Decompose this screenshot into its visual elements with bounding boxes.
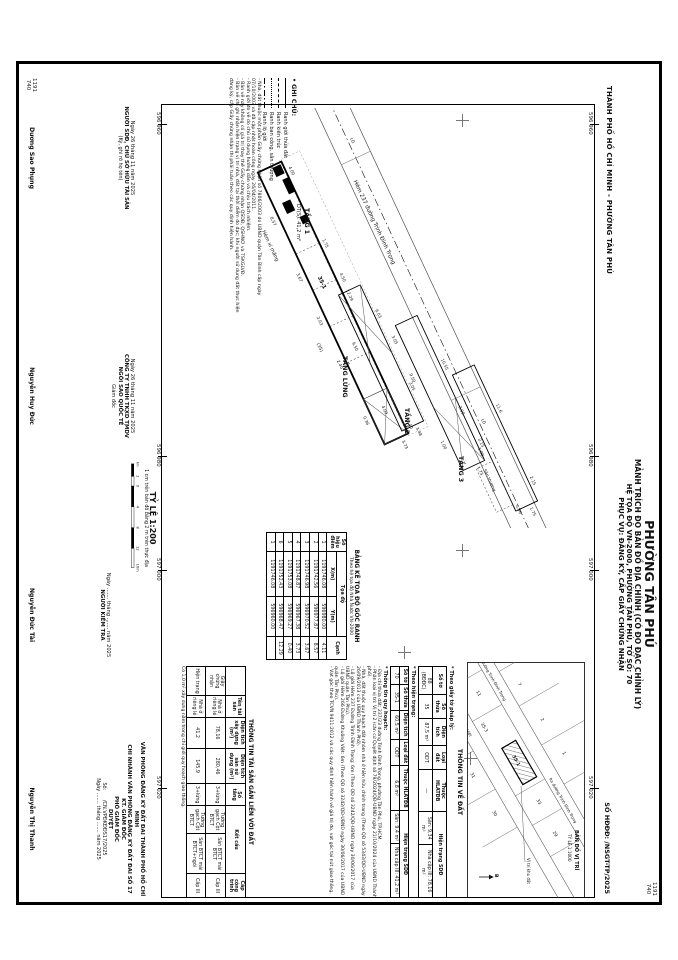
cell: — bbox=[418, 770, 432, 812]
signature-name-company: Nguyễn Huy Đức bbox=[28, 316, 35, 476]
cell-y: 596960.00 bbox=[267, 596, 276, 636]
line-sample-solid-icon bbox=[285, 78, 286, 108]
scale-title: TỶ LỆ 1:200 bbox=[148, 462, 157, 574]
scale-tick-label: 8 bbox=[135, 526, 139, 529]
signature-name-checker: Nguyễn Đức Tài bbox=[28, 550, 35, 680]
row-label: Giấy chứng nhận bbox=[206, 667, 226, 696]
dim-label: 0.36 bbox=[362, 415, 371, 426]
scale-tick-label: 0 bbox=[135, 485, 139, 488]
table-row: 5 1191753.08 596969.27 0.40 bbox=[284, 533, 293, 660]
inset-title: BẢN ĐỒ VỊ TRÍ bbox=[573, 830, 582, 871]
col-header: Kết cấu bbox=[226, 805, 246, 873]
cell-point: 1 bbox=[267, 533, 276, 552]
dim-label: 4.50 bbox=[339, 272, 348, 283]
cell: 70 bbox=[391, 667, 400, 685]
cell-x: 1191746.98 bbox=[301, 552, 310, 597]
inset-parcel-number: 30 bbox=[490, 810, 498, 818]
cell-point: 2 bbox=[310, 533, 319, 552]
parcel-number-alt: (35) bbox=[315, 342, 325, 353]
col-header: Y(m) bbox=[327, 596, 337, 636]
cell-point: 4 bbox=[292, 533, 301, 552]
street-area: Hẻm 237 đường Trịnh Đình Trọng LG LG bbox=[295, 108, 556, 528]
col-header: Số tờ bbox=[400, 667, 409, 685]
col-header: Cạnh bbox=[327, 637, 347, 660]
col-header: Cấp công trình bbox=[226, 874, 246, 898]
cell: Nhà ở riêng lẻ bbox=[186, 696, 206, 718]
floor-label-tang1: TẦNG 1 bbox=[303, 208, 313, 234]
legend-item: Ranh ban công, sân thượng bbox=[268, 78, 275, 316]
signature-role: NGƯỜI KIỂM TRA bbox=[99, 550, 105, 680]
cell: Nhà cấp III: 78,16 m² bbox=[418, 845, 432, 898]
floor-plan-tang2: 10.55 2.15 9.50 1.00 1.75 3.05 bbox=[387, 312, 496, 485]
signature-date: Ngày ....... tháng ....... năm 2025 bbox=[105, 550, 111, 680]
table-row: 70 35-1 60,5 m² ODT 6,8 m² Sân: 9,4 m² N… bbox=[391, 667, 400, 898]
cell-y: 596967.38 bbox=[292, 596, 301, 636]
scale-tick-label: 4 bbox=[135, 506, 139, 509]
corner-coordinate: 1191 740 bbox=[645, 882, 657, 896]
land-info-title: THÔNG TIN VỀ ĐẤT bbox=[456, 666, 463, 898]
floor-label-tang-lung: TẦNG LỬNG bbox=[341, 356, 351, 398]
asset-info-title: THÔNG TIN TÀI SẢN GẮN LIỀN VỚI ĐẤT bbox=[247, 666, 253, 898]
cell: 3+lửng bbox=[206, 784, 226, 805]
subtitle-1: MẢNH TRÍCH ĐO BẢN ĐỒ ĐỊA CHÍNH (CÓ ĐO ĐẠ… bbox=[633, 364, 642, 804]
coordinate-table-block: BẢNG KÊ TỌA ĐỘ GÓC RANH Theo hệ tọa độ N… bbox=[266, 532, 359, 660]
cell: 3+lửng bbox=[186, 784, 206, 805]
scale-tick-label: 16m bbox=[135, 564, 139, 573]
signature-name-owner: Dương Sao Phụng bbox=[28, 88, 35, 228]
planning-note: - Lộ giới Hẻm 266 Đường Khuông Việt: 6m … bbox=[333, 666, 344, 898]
inset-parcel-number: 1 bbox=[560, 751, 567, 757]
cell-x: 1191742.56 bbox=[310, 552, 319, 597]
legend-item-label: Ranh ban công, sân thượng bbox=[269, 112, 275, 181]
legend-item: Ranh giới thửa đất bbox=[282, 78, 289, 316]
cell-edge bbox=[267, 637, 276, 660]
contract-number: SỐ HĐĐĐ: /NSGT-TP/2025 bbox=[603, 802, 611, 894]
dim-label: 2.03 bbox=[316, 316, 325, 327]
dim-label: 3.48 bbox=[415, 426, 424, 437]
signature-office: VĂN PHÒNG ĐĂNG KÝ ĐẤT ĐAI THÀNH PHỐ HỒ C… bbox=[95, 736, 145, 902]
cell-x: 1191753.08 bbox=[284, 552, 293, 597]
inset-street3: Hẻm 266 đường Khuông Việt bbox=[467, 686, 474, 738]
legend-item-label: Ranh lộ giới bbox=[262, 112, 268, 141]
signature-checker: Ngày ....... tháng ....... năm 2025 NGƯỜ… bbox=[99, 550, 111, 680]
col-header: Diện tích sàn sử dụng (m²) bbox=[226, 748, 246, 784]
col-header: Hiện trạng SDĐ bbox=[432, 812, 446, 898]
cell: Sân: 9,34 m² bbox=[418, 812, 432, 845]
dim-label: 3.05 bbox=[391, 335, 400, 346]
land-legal-table: Số tờ Số thửa Diện tích Loại đất Thuộc H… bbox=[418, 666, 447, 898]
inset-parcel-number: 2 bbox=[539, 717, 546, 723]
col-header: Thuộc HLATĐB bbox=[432, 770, 446, 812]
signature-hint: (Ký, ghi rõ họ tên) bbox=[117, 88, 123, 228]
grid-cross bbox=[456, 544, 469, 557]
cell: Sàn BTCT mái BTCT+ngói bbox=[186, 834, 206, 874]
table-row: Giấy chứng nhận Nhà ở riêng lẻ 78,16 280… bbox=[206, 667, 226, 898]
signature-company: Ngày 26 tháng 11 năm 2025 CÔNG TY TNHH T… bbox=[110, 316, 135, 476]
signature-company-line2: NGÔI SAO QUỐC TẾ bbox=[116, 316, 122, 476]
subtitle-2: HỆ TỌA ĐỘ VN-2000, PHƯỜNG TÂN PHÚ, TỜ SỐ… bbox=[625, 364, 633, 804]
line-sample-dashed-icon bbox=[278, 78, 279, 108]
dim-label: 9.50 bbox=[351, 341, 360, 352]
signature-date: Ngày ....... tháng ....... năm 2025 bbox=[95, 736, 101, 902]
inset-parcel-number: 33 bbox=[535, 798, 543, 806]
cell-point: 1 bbox=[318, 533, 327, 552]
asset-table: Tên tài sản Diện tích xây dựng (m²) Diện… bbox=[186, 666, 246, 898]
page-title: PHƯỜNG TÂN PHÚ bbox=[642, 364, 657, 804]
coordinate-table-title: BẢNG KÊ TỌA ĐỘ GÓC RANH bbox=[353, 532, 359, 660]
cell: Sàn BTCT mái BTCT bbox=[206, 834, 226, 874]
col-header: Hiện trạng SDĐ bbox=[400, 811, 409, 898]
corner-coordinate-top: 1191 bbox=[651, 882, 657, 896]
grid-tick bbox=[158, 124, 167, 125]
signature-owner: Ngày 26 tháng 11 năm 2025 NGƯỜI SDĐ, CHỦ… bbox=[117, 88, 135, 228]
grid-tick bbox=[590, 570, 599, 571]
col-header: Diện tích bbox=[432, 718, 446, 745]
dim-label: 1.75 bbox=[321, 238, 330, 249]
inset-location-label: Vị trí khu đất bbox=[526, 858, 531, 884]
office-line2: CHI NHÁNH VĂN PHÒNG ĐĂNG KÝ ĐẤT ĐAI SỐ 1… bbox=[126, 736, 132, 902]
cell: Sân: 9,4 m² bbox=[391, 811, 400, 844]
cell-point: 5 bbox=[284, 533, 293, 552]
col-header: Tên tài sản bbox=[226, 696, 246, 718]
legend-note: - Bản vẽ này không có giá trị thay thế G… bbox=[239, 78, 245, 316]
planning-note: - Phân loại vị trí: Vị trí 2 (căn cứ Quy… bbox=[365, 666, 376, 898]
subtitle-3: PHỤC VỤ: ĐĂNG KÝ, CẤP GIẤY CHỨNG NHẬN bbox=[617, 364, 625, 804]
grid-cross bbox=[398, 646, 411, 659]
land-info-block: THÔNG TIN VỀ ĐẤT * Theo giấy tờ pháp lý:… bbox=[327, 666, 463, 898]
dim-label: 10.55 bbox=[440, 358, 450, 371]
cell: 35-1 bbox=[391, 685, 400, 710]
cell: Cấp III bbox=[206, 874, 226, 898]
office-line5: DUYỆT bbox=[107, 736, 113, 902]
table-row: 2 1191742.56 596977.87 8.57 bbox=[310, 533, 319, 660]
cell: 78,16 bbox=[206, 717, 226, 748]
table-row: 4 1191748.87 596967.38 3.73 bbox=[292, 533, 301, 660]
dim-label: 1.75 bbox=[529, 506, 538, 517]
table-row: 1 1191746.08 596960.00 bbox=[267, 533, 276, 660]
cell: 87,5 m² bbox=[418, 718, 432, 745]
line-sample-dashdot-icon bbox=[264, 78, 265, 108]
cell: 280,46 bbox=[206, 748, 226, 784]
cell-x: 1191746.08 bbox=[267, 552, 276, 597]
cell-point: 6 bbox=[275, 533, 284, 552]
signature-company-line1: CÔNG TY TNHH TKXD TMDV bbox=[123, 316, 129, 476]
cell-edge: 4.11 bbox=[318, 637, 327, 660]
land-current-table: Số tờ Số thửa Diện tích Loại đất Thuộc H… bbox=[390, 666, 408, 898]
legend-note: - Ranh giới đo vẽ do chủ sử dụng hướng d… bbox=[244, 78, 250, 316]
cell: Tường gạch Cột BTCT bbox=[186, 805, 206, 834]
office-line4: PHÓ GIÁM ĐỐC bbox=[113, 736, 119, 902]
inset-scale: TỶ LỆ 1:1000 bbox=[567, 833, 572, 862]
col-header: Số thửa bbox=[432, 695, 446, 719]
inset-parcel-number: 35-3 bbox=[479, 722, 489, 734]
cell-edge: 0.40 bbox=[284, 637, 293, 660]
asset-info-block: THÔNG TIN TÀI SẢN GẮN LIỀN VỚI ĐẤT Tên t… bbox=[179, 666, 253, 898]
lg-label: LG bbox=[349, 137, 356, 144]
cell-y: 596968.47 bbox=[275, 596, 284, 636]
planning-note: - Địa chỉ thửa đất: 237/23 đường Trịnh Đ… bbox=[376, 666, 381, 898]
office-line3: KT. GIÁM ĐỐC bbox=[119, 736, 125, 902]
page: { "sheet": { "city_line": "THÀNH PHỐ HỒ … bbox=[0, 0, 678, 960]
scale-block: TỶ LỆ 1:200 1 cm trên bản đồ bằng 2 m tr… bbox=[121, 462, 157, 574]
legend-note: - Nhà, đất thuộc một phần Giấy chứng nhậ… bbox=[250, 78, 261, 316]
col-header: Số tờ bbox=[432, 667, 446, 695]
legend-item-label: Ranh giới thửa đất bbox=[283, 112, 289, 158]
table-row: 3 1191746.98 596970.52 3.67 bbox=[301, 533, 310, 660]
floor-plan-tang-lung: 6.03 3.05 9.50 4.09 3.48 4.50 bbox=[322, 265, 435, 447]
cell-edge: 3.73 bbox=[292, 637, 301, 660]
location-inset-map: 35-1 Hẻm 237 đường Trịnh Đình Trọng Ra đ… bbox=[467, 662, 585, 898]
signature-role: NGƯỜI SDĐ, CHỦ SỞ HỮU TÀI SẢN bbox=[123, 88, 129, 228]
cell-y: 596980.00 bbox=[318, 596, 327, 636]
dim-label: 0.36 bbox=[515, 504, 524, 515]
cell-edge: 12.29 bbox=[275, 637, 284, 660]
coordinate-table: Số hiệu điểm Tọa độ Cạnh X(m) Y(m) 1 119… bbox=[266, 532, 347, 660]
grid-tick bbox=[590, 788, 599, 789]
cell: ODT bbox=[418, 745, 432, 770]
cell: 60,5 m² bbox=[391, 710, 400, 739]
planning-note: - Vạt góc theo TCVN 9411:2012 và các quy… bbox=[327, 666, 332, 898]
asset-note: Có 1,0 m² xây dựng nằm trong chỉ giới qu… bbox=[179, 666, 184, 898]
col-header: Tọa độ bbox=[337, 552, 347, 637]
inset-parcel-number: 31 bbox=[468, 772, 476, 780]
cell: Cấp III bbox=[186, 874, 206, 898]
cell-y: 596969.27 bbox=[284, 596, 293, 636]
dim-label: 1.00 bbox=[440, 440, 449, 451]
signature-date: Ngày 26 tháng 11 năm 2025 bbox=[129, 316, 135, 476]
legend-title: • GHI CHÚ: bbox=[290, 78, 297, 316]
line-sample-dotted-icon bbox=[271, 78, 272, 108]
col-header bbox=[226, 667, 246, 696]
cell-x: 1191748.87 bbox=[292, 552, 301, 597]
cell-y: 596970.52 bbox=[301, 596, 310, 636]
lg-label: LG bbox=[480, 418, 487, 425]
legend-note: - Bản vẽ chỉ ghi nhận hiện trạng vị trí … bbox=[227, 78, 238, 316]
scale-note: 1 cm trên bản đồ bằng 2 m trên thực địa bbox=[143, 462, 148, 574]
grid-tick bbox=[158, 788, 167, 789]
grid-tick bbox=[158, 570, 167, 571]
legend-item: Ranh kiến trúc bbox=[275, 78, 282, 316]
cell-x: 1191746.08 bbox=[318, 552, 327, 597]
cell-edge: 8.57 bbox=[310, 637, 319, 660]
cell: Nhà ở riêng lẻ bbox=[206, 696, 226, 718]
signature-name-office: Nguyễn Thị Thanh bbox=[28, 736, 35, 902]
table-row: 88 (BĐĐC) 35 87,5 m² ODT — Sân: 9,34 m² … bbox=[418, 667, 432, 898]
cell: Tường gạch Cột BTCT bbox=[206, 805, 226, 834]
table-row: 1 1191746.08 596980.00 4.11 bbox=[318, 533, 327, 660]
planning-note: - Nhà, đất thuộc quy hoạch đất nhóm nhà … bbox=[354, 666, 365, 898]
sheet-border: THÀNH PHỐ HỒ CHÍ MINH - PHƯỜNG TÂN PHÚ P… bbox=[16, 61, 662, 905]
col-header: Loại đất bbox=[400, 739, 409, 766]
inset-parcel-number: 11 bbox=[474, 690, 482, 698]
col-header: Số tầng bbox=[226, 784, 246, 805]
street-label: Hẻm 237 đường Trịnh Đình Trọng bbox=[352, 179, 398, 266]
col-header: X(m) bbox=[327, 552, 337, 597]
signature-role: Giám đốc bbox=[110, 316, 116, 476]
grid-tick bbox=[158, 456, 167, 457]
corner-coordinate-bottom: 740 bbox=[645, 882, 651, 896]
city-line: THÀNH PHỐ HỒ CHÍ MINH - PHƯỜNG TÂN PHÚ bbox=[605, 86, 613, 406]
cell: 35 bbox=[418, 695, 432, 719]
legend-item-label: Ranh kiến trúc bbox=[276, 112, 282, 148]
cell: ODT bbox=[391, 739, 400, 766]
roof-terrace-label: Sân thượng bbox=[482, 468, 497, 492]
cell: 6,8 m² bbox=[391, 766, 400, 811]
dim-label: 4.09 bbox=[381, 405, 390, 416]
land-legal-label: * Theo giấy tờ pháp lý: bbox=[448, 666, 454, 898]
dim-label: 1.00 bbox=[477, 447, 486, 458]
north-indicator: B bbox=[493, 874, 499, 878]
col-header: Thuộc HLATĐB bbox=[400, 766, 409, 811]
floor-plan-tang3: 11.6 2.15 3.00 1.00 1.75 0.36 Sân thượng bbox=[436, 362, 549, 528]
land-current-label: * Theo hiện trạng: bbox=[410, 666, 416, 898]
office-line1: VĂN PHÒNG ĐĂNG KÝ ĐẤT ĐAI THÀNH PHỐ HỒ C… bbox=[132, 736, 145, 902]
scale-bar: 4m 2 0 4 8 12 16m bbox=[125, 462, 143, 574]
col-header: Diện tích xây dựng (m²) bbox=[226, 717, 246, 748]
scale-tick-label: 4m bbox=[135, 462, 139, 467]
scale-tick-label: 2 bbox=[135, 475, 139, 477]
title-block: PHƯỜNG TÂN PHÚ MẢNH TRÍCH ĐO BẢN ĐỒ ĐỊA … bbox=[617, 364, 657, 804]
col-header: Số thửa bbox=[400, 685, 409, 710]
table-row: 6 1191752.43 596968.47 12.29 bbox=[275, 533, 284, 660]
legend-item: Ranh lộ giới bbox=[261, 78, 268, 316]
col-header: Loại đất bbox=[432, 745, 446, 770]
dim-label: 3.73 bbox=[401, 439, 410, 450]
cell: Nhà cấp III: 41,2 m² bbox=[391, 844, 400, 898]
cell: 88 (BĐĐC) bbox=[418, 667, 432, 695]
cell-x: 1191752.43 bbox=[275, 552, 284, 597]
dim-label: 3.00 bbox=[457, 405, 466, 416]
row-label: Hiện trạng bbox=[186, 667, 206, 696]
inset-parcel-number: 29 bbox=[551, 830, 559, 838]
col-header: Số hiệu điểm bbox=[327, 533, 347, 552]
signature-date: Ngày 26 tháng 11 năm 2025 bbox=[129, 88, 135, 228]
table-row: Hiện trạng Nhà ở riêng lẻ 41,2 145,9 3+l… bbox=[186, 667, 206, 898]
cell-edge: 3.67 bbox=[301, 637, 310, 660]
cell-point: 3 bbox=[301, 533, 310, 552]
cell: 145,9 bbox=[186, 748, 206, 784]
cell-y: 596977.87 bbox=[310, 596, 319, 636]
planning-label: * Thông tin quy hoạch: bbox=[382, 666, 388, 898]
legend: • GHI CHÚ: Ranh giới thửa đất Ranh kiến … bbox=[227, 78, 297, 316]
col-header: Diện tích bbox=[400, 710, 409, 739]
cell: 41,2 bbox=[186, 717, 206, 748]
planning-note: - Lộ giới Hẻm 237 Đường Trịnh Đình Trọng… bbox=[344, 666, 355, 898]
scale-tick-label: 12 bbox=[135, 546, 139, 551]
cadastral-sheet-rotated: THÀNH PHỐ HỒ CHÍ MINH - PHƯỜNG TÂN PHÚ P… bbox=[16, 55, 662, 905]
inset-parcel-number: 7 bbox=[516, 682, 523, 688]
office-doc-number: Số: /CN.VPĐKĐĐS17/2025 bbox=[101, 736, 107, 902]
